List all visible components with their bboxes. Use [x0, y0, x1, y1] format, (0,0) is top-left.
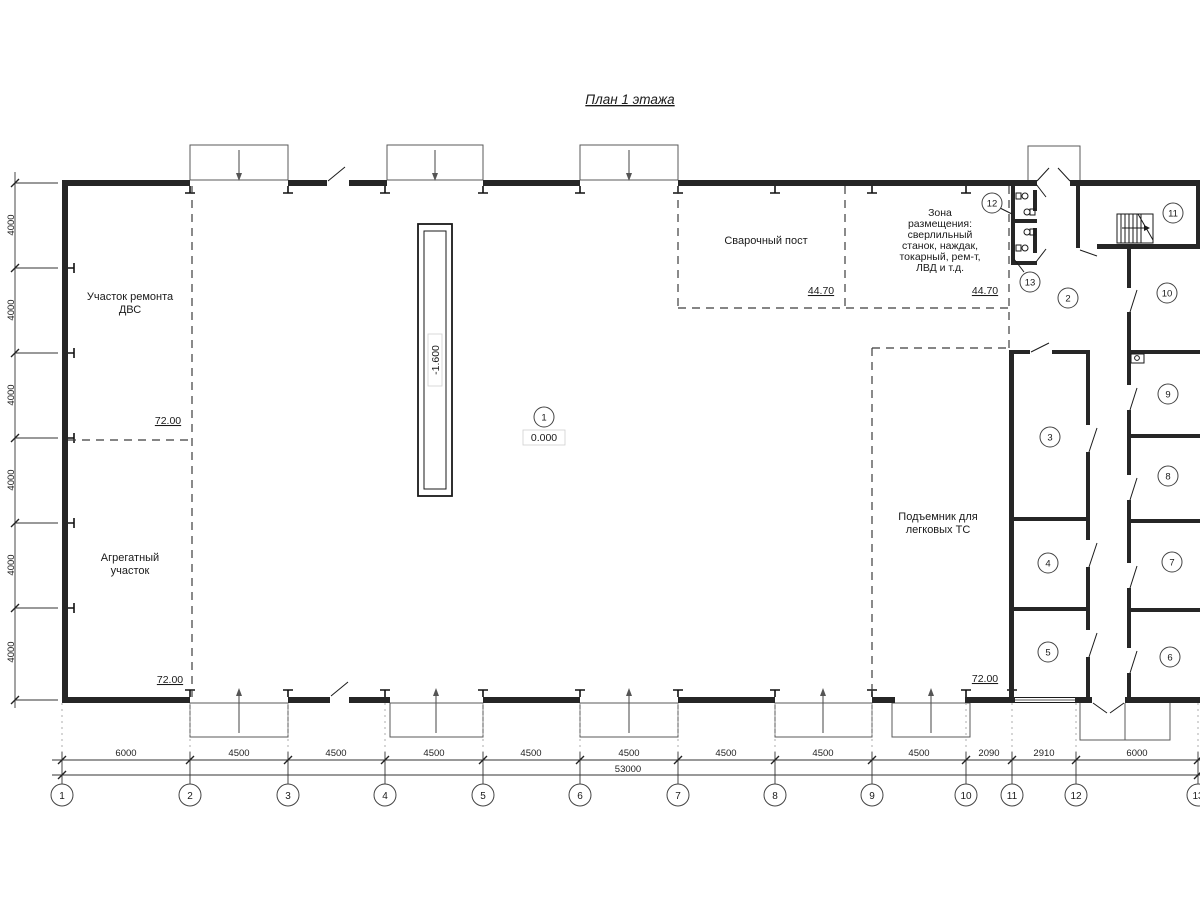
window-symbol	[1015, 698, 1075, 703]
welding-post-label: Сварочный пост	[724, 235, 807, 247]
svg-text:7: 7	[675, 791, 681, 802]
svg-text:10: 10	[1162, 289, 1173, 300]
door-leaf	[1031, 343, 1049, 352]
door-leaf	[328, 167, 345, 181]
room-tag: 4	[1038, 553, 1058, 573]
svg-text:11: 11	[1007, 791, 1018, 802]
engine-repair-label: Участок ремонта	[87, 291, 174, 303]
svg-text:2: 2	[1065, 294, 1070, 305]
svg-text:13: 13	[1025, 278, 1036, 289]
axis-circles: 1 2 3 4 5 6 7 8 9 10 11 12 13	[51, 784, 1200, 806]
svg-text:9: 9	[869, 791, 875, 802]
floor-plan-sheet: План 1 этажа	[0, 0, 1200, 900]
gate-symbols-top	[190, 145, 1080, 181]
room-tag: 13	[1020, 272, 1040, 292]
svg-text:4500: 4500	[812, 748, 833, 759]
door-leaf	[1110, 703, 1124, 713]
vestibule-top	[1028, 146, 1080, 180]
door-leaf	[331, 682, 348, 696]
door-leaf	[1130, 290, 1137, 312]
svg-text:4500: 4500	[715, 748, 736, 759]
svg-text:10: 10	[960, 791, 972, 802]
gate-symbols-bottom	[190, 688, 1170, 740]
car-lift-label: Подъемник для	[898, 511, 977, 523]
door-leaf	[1130, 388, 1137, 410]
stairs-icon	[1117, 214, 1153, 243]
svg-text:5: 5	[1045, 648, 1050, 659]
svg-text:4: 4	[382, 791, 388, 802]
svg-text:4500: 4500	[520, 748, 541, 759]
svg-text:3: 3	[1047, 433, 1052, 444]
elevation-72-bottom-right: 72.00	[972, 673, 998, 685]
svg-text:2910: 2910	[1033, 748, 1054, 759]
door-leaf	[1058, 168, 1070, 181]
svg-text:ЛВД и т.д.: ЛВД и т.д.	[916, 262, 964, 274]
room-labels: Участок ремонта ДВС Агрегатный участок С…	[87, 207, 981, 577]
svg-text:8: 8	[772, 791, 778, 802]
axis-circle: 13	[1187, 784, 1200, 806]
axis-circle: 3	[277, 784, 299, 806]
svg-text:4000: 4000	[6, 641, 17, 662]
svg-text:5: 5	[480, 791, 486, 802]
axis-circle: 1	[51, 784, 73, 806]
door-leaf	[1037, 168, 1049, 181]
pit-depth-label: -1.600	[430, 345, 442, 375]
room-tag: 1	[534, 407, 554, 427]
door-leaf	[1089, 543, 1097, 567]
svg-text:4500: 4500	[325, 748, 346, 759]
svg-text:участок: участок	[111, 565, 150, 577]
elevation-0000: 0.000	[531, 432, 557, 444]
door-leaf	[1036, 184, 1046, 197]
svg-text:4500: 4500	[908, 748, 929, 759]
svg-text:6000: 6000	[1126, 748, 1147, 759]
sink-icon	[1131, 354, 1144, 363]
axis-circle: 9	[861, 784, 883, 806]
left-dimensions: 4000 4000 4000 4000 4000 4000	[6, 172, 58, 708]
room-tag: 11	[1163, 203, 1183, 223]
door-leaf	[1130, 478, 1137, 500]
svg-text:легковых ТС: легковых ТС	[906, 524, 971, 536]
room-tag: 7	[1162, 552, 1182, 572]
svg-text:7: 7	[1169, 558, 1174, 569]
axis-circle: 5	[472, 784, 494, 806]
svg-text:1: 1	[541, 413, 546, 424]
room-tag: 6	[1160, 647, 1180, 667]
door-leaf	[1093, 703, 1107, 713]
bottom-dimensions: 6000 4500 4500 4500 4500 4500 4500 4500 …	[52, 703, 1200, 784]
room-tag: 8	[1158, 466, 1178, 486]
door-leaf	[1130, 566, 1137, 588]
door-leaf	[1089, 633, 1097, 657]
axis-circle: 4	[374, 784, 396, 806]
room-tag: 12	[982, 193, 1002, 213]
axis-circle: 12	[1065, 784, 1087, 806]
floor-plan-drawing: План 1 этажа	[0, 0, 1200, 900]
toilet-icon	[1016, 193, 1028, 199]
door-leaf	[1130, 651, 1137, 673]
axis-circle: 10	[955, 784, 977, 806]
elevation-4470-right: 44.70	[972, 285, 998, 297]
svg-text:4000: 4000	[6, 299, 17, 320]
elevation-72-left: 72.00	[155, 415, 181, 427]
axis-circle: 2	[179, 784, 201, 806]
svg-text:4000: 4000	[6, 384, 17, 405]
room-tag: 5	[1038, 642, 1058, 662]
svg-text:4500: 4500	[423, 748, 444, 759]
svg-text:12: 12	[1070, 791, 1082, 802]
axis-circle: 11	[1001, 784, 1023, 806]
wc-block	[1011, 182, 1046, 265]
room-tag: 10	[1157, 283, 1177, 303]
svg-text:11: 11	[1168, 209, 1178, 220]
door-leaf	[1089, 428, 1097, 452]
svg-text:4500: 4500	[228, 748, 249, 759]
svg-text:4000: 4000	[6, 554, 17, 575]
svg-text:2090: 2090	[978, 748, 999, 759]
svg-text:ДВС: ДВС	[119, 304, 141, 316]
room-tag: 2	[1058, 288, 1078, 308]
exterior-walls	[62, 167, 1200, 713]
axis-circle: 6	[569, 784, 591, 806]
room-number-tags: 1 2 3 4 5 6 7 8 9 10 11 12 13	[534, 193, 1183, 667]
svg-text:6000: 6000	[115, 748, 136, 759]
svg-text:2: 2	[187, 791, 193, 802]
svg-text:6: 6	[577, 791, 583, 802]
svg-text:3: 3	[285, 791, 291, 802]
toilet-icon	[1016, 245, 1028, 251]
aggregate-label: Агрегатный	[101, 552, 159, 564]
svg-text:4: 4	[1045, 559, 1050, 570]
svg-text:8: 8	[1165, 472, 1170, 483]
axis-circle: 8	[764, 784, 786, 806]
svg-text:1: 1	[59, 791, 65, 802]
svg-text:4000: 4000	[6, 214, 17, 235]
room-tag: 9	[1158, 384, 1178, 404]
svg-text:4500: 4500	[618, 748, 639, 759]
elevation-72-bottom-left: 72.00	[157, 674, 183, 686]
svg-text:6: 6	[1167, 653, 1172, 664]
door-leaf	[1036, 249, 1046, 262]
page-title: План 1 этажа	[585, 92, 675, 107]
elevation-marks: 72.00 72.00 72.00 44.70 44.70 0.000	[155, 285, 998, 686]
room-tag: 3	[1040, 427, 1060, 447]
elevation-4470-left: 44.70	[808, 285, 834, 297]
svg-text:13: 13	[1192, 791, 1200, 802]
inspection-pit: -1.600	[418, 224, 452, 496]
svg-text:9: 9	[1165, 390, 1170, 401]
svg-text:12: 12	[987, 199, 998, 210]
axis-circle: 7	[667, 784, 689, 806]
total-dimension: 53000	[615, 764, 641, 775]
svg-text:4000: 4000	[6, 469, 17, 490]
